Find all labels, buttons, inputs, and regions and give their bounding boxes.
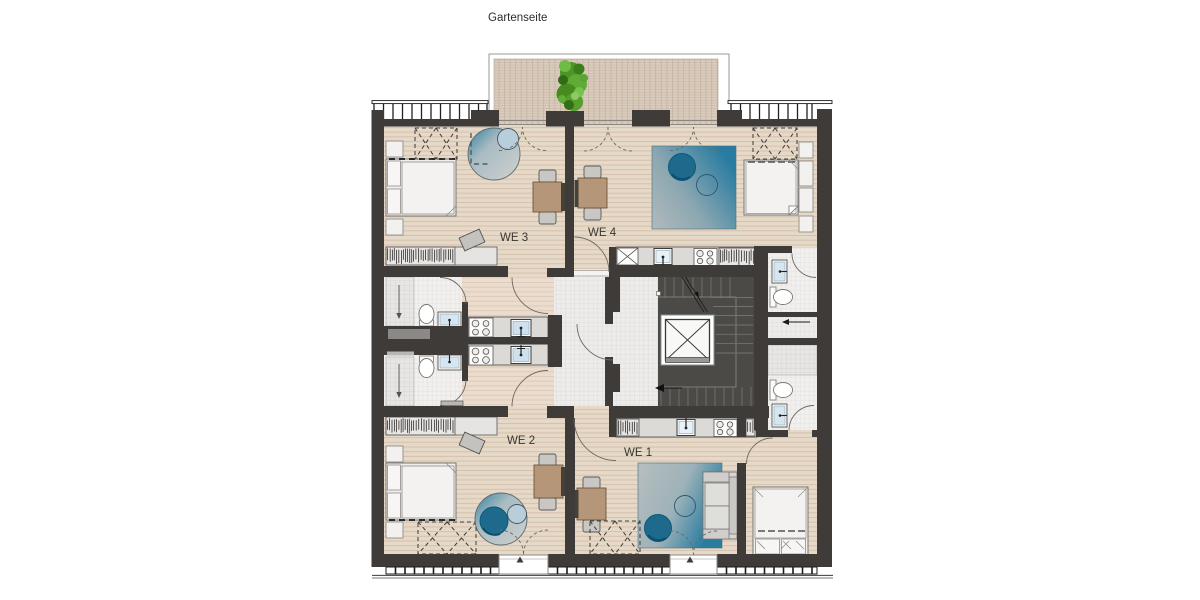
svg-text:WE 3: WE 3 xyxy=(500,232,528,244)
svg-text:WE 2: WE 2 xyxy=(507,435,535,447)
svg-text:WE 4: WE 4 xyxy=(588,227,617,239)
svg-text:Gartenseite: Gartenseite xyxy=(488,12,547,24)
svg-text:WE 1: WE 1 xyxy=(624,447,652,459)
